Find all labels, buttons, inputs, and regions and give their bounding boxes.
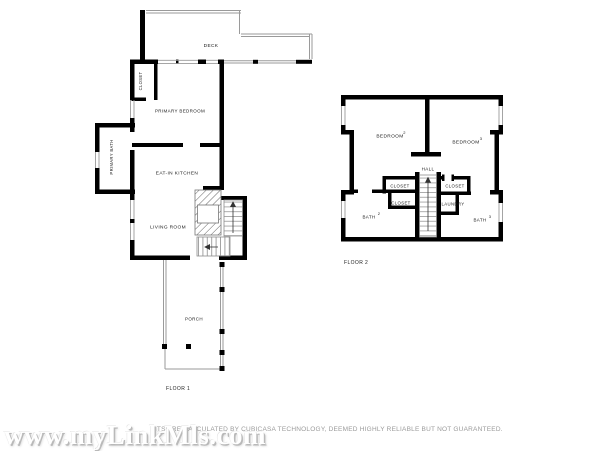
room-label-closet-right: CLOSET — [445, 184, 464, 189]
room-label-bath-3: BATH — [473, 218, 486, 223]
room-label-primary-bath: PRIMARY BATH — [109, 139, 114, 174]
room-label-bath-3-number: 3 — [489, 214, 492, 219]
room-label-primary-bedroom: PRIMARY BEDROOM — [155, 109, 205, 114]
room-label-eat-in-kitchen: EAT-IN KITCHEN — [156, 171, 199, 177]
floor1-title: FLOOR 1 — [166, 386, 190, 392]
room-label-closet-left-lower: CLOSET — [391, 201, 410, 206]
floor-plan-canvas: DECK CLOSET PRIMARY BEDROOM PRIMARY BATH… — [0, 0, 600, 450]
room-label-bedroom-2-number: 2 — [403, 130, 406, 135]
room-label-bath-2: BATH — [362, 215, 375, 220]
floor2-stairs — [420, 175, 437, 237]
room-label-laundry: LAUNDRY — [442, 202, 465, 207]
room-label-closet-left-upper: CLOSET — [390, 184, 409, 189]
room-label-porch: PORCH — [185, 317, 203, 322]
room-label-bath-2-number: 2 — [378, 211, 381, 216]
floor2-plan: BEDROOM 2 BEDROOM 3 HALL CLOSET CLOSET C… — [341, 95, 503, 266]
room-label-living-room: LIVING ROOM — [150, 225, 186, 231]
floor1-stairs — [195, 190, 243, 256]
room-label-bedroom-2: BEDROOM — [376, 134, 403, 140]
room-label-closet: CLOSET — [138, 71, 143, 90]
watermark: www.myLinkMls.com — [4, 420, 266, 451]
deck-railing — [146, 11, 312, 64]
room-label-hall: HALL — [422, 167, 435, 172]
floor1-plan: DECK CLOSET PRIMARY BEDROOM PRIMARY BATH… — [95, 10, 312, 392]
porch-railing — [162, 260, 225, 371]
room-label-bedroom-3: BEDROOM — [452, 140, 479, 146]
room-label-deck: DECK — [204, 43, 219, 49]
room-label-bedroom-3-number: 3 — [480, 136, 483, 141]
floor2-title: FLOOR 2 — [344, 260, 368, 266]
